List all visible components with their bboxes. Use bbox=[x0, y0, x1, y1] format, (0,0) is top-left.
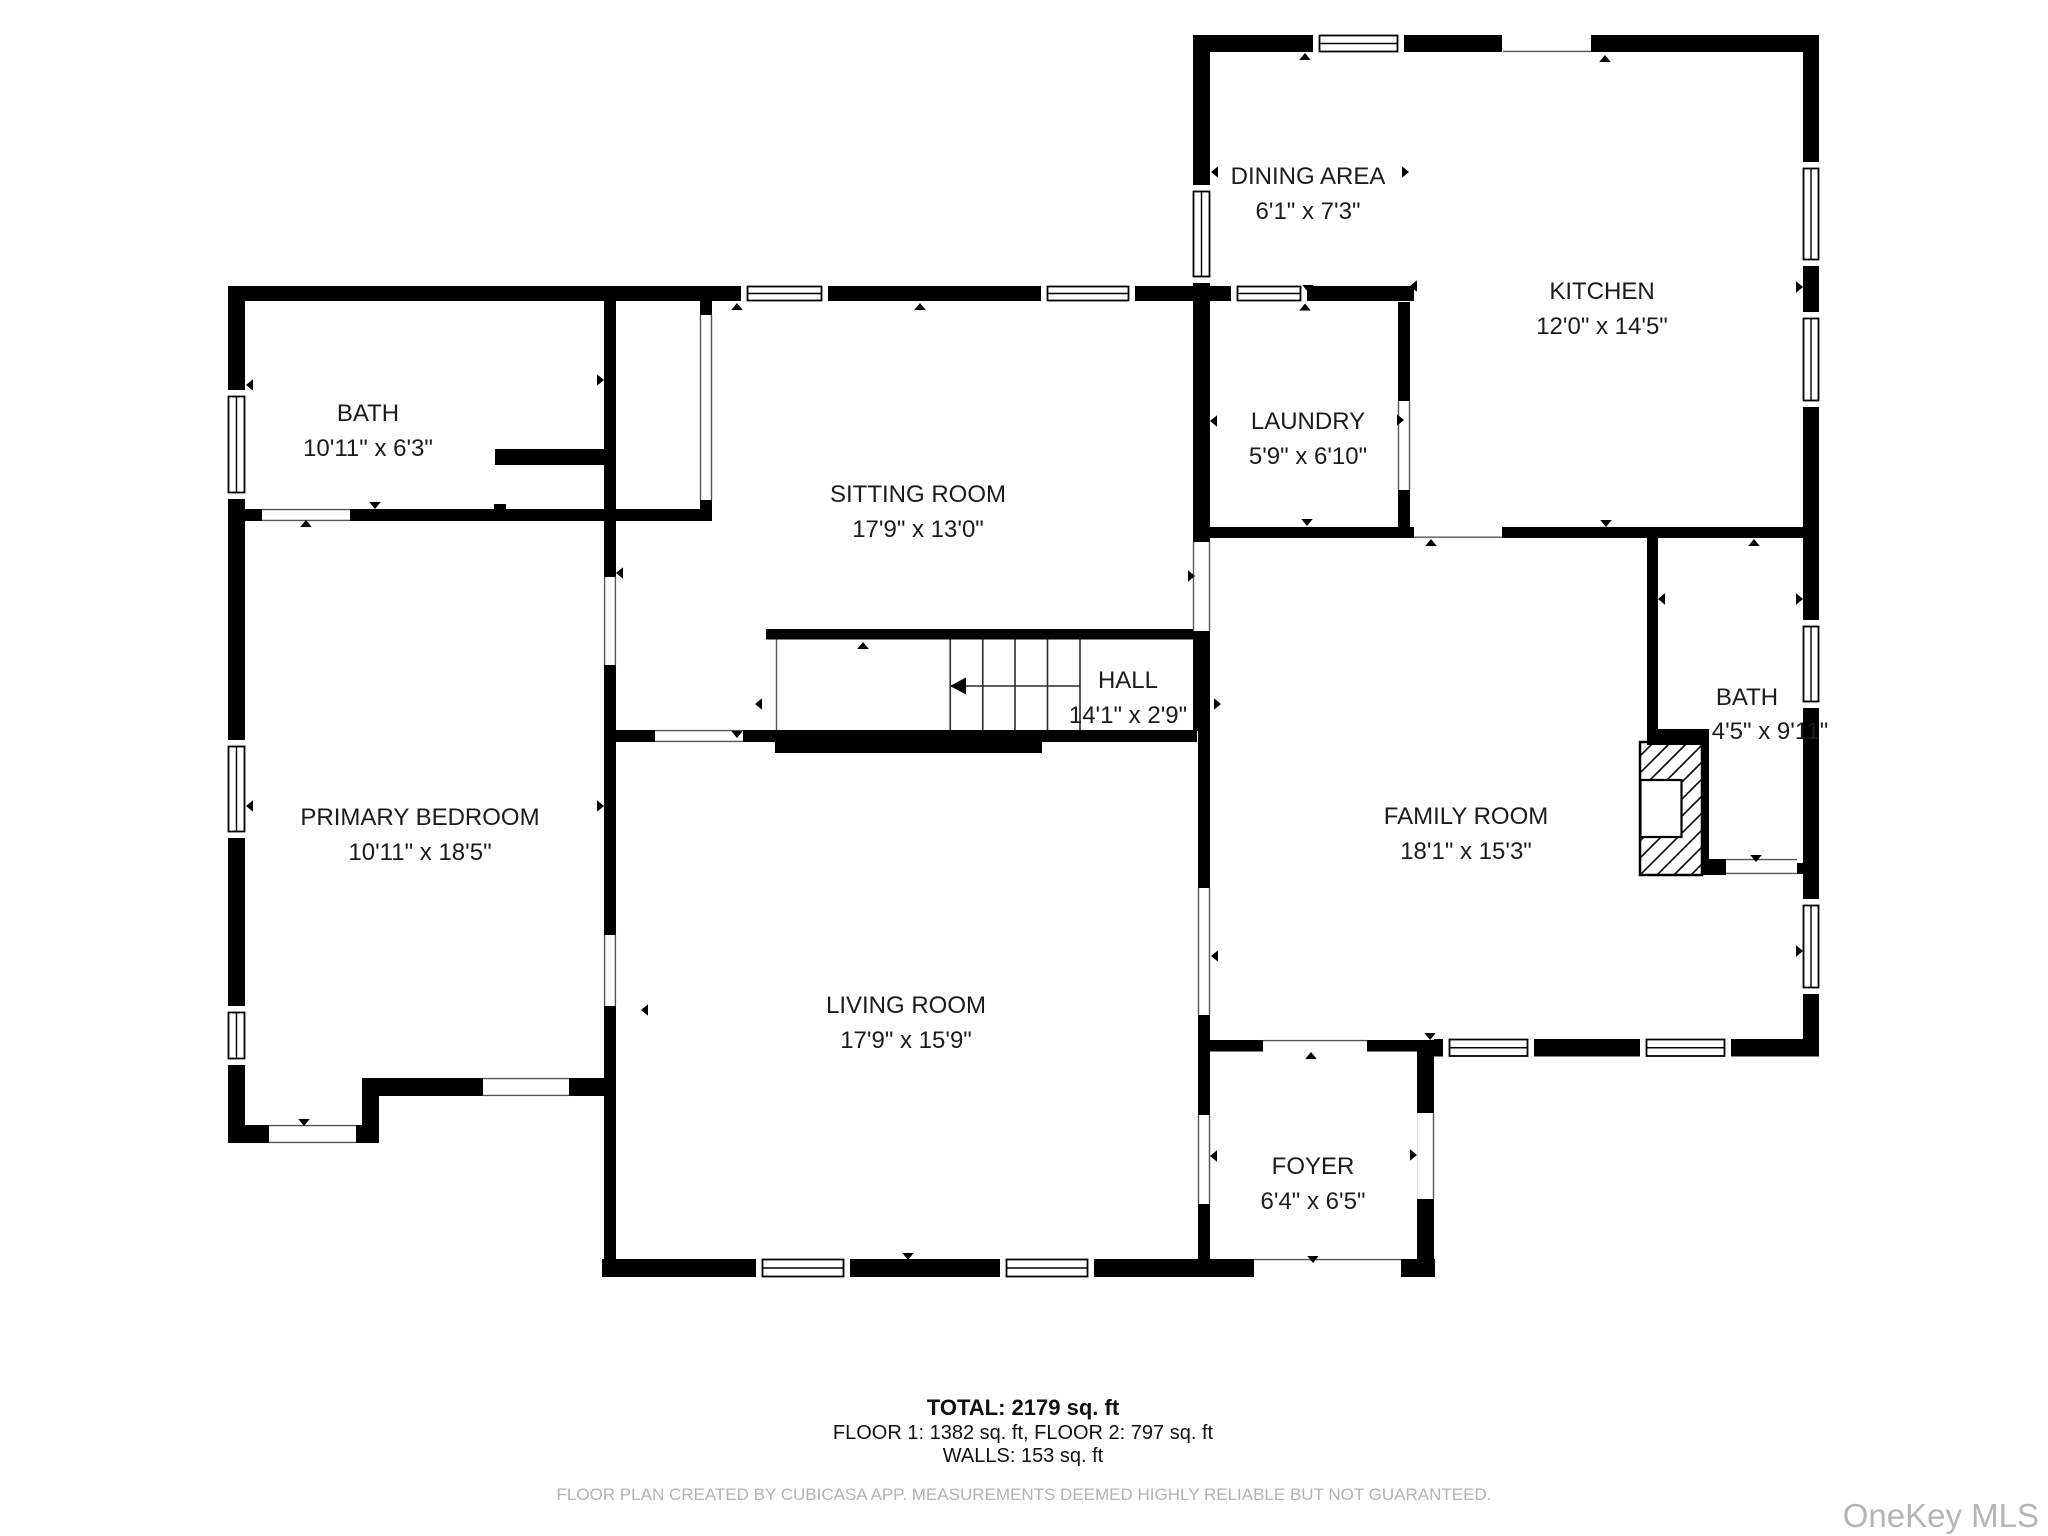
svg-text:KITCHEN: KITCHEN bbox=[1549, 278, 1654, 305]
svg-text:BATH: BATH bbox=[1716, 684, 1778, 711]
svg-text:SITTING ROOM: SITTING ROOM bbox=[830, 481, 1006, 508]
svg-text:FLOOR PLAN CREATED BY CUBICASA: FLOOR PLAN CREATED BY CUBICASA APP. MEAS… bbox=[557, 1485, 1492, 1504]
svg-text:LIVING ROOM: LIVING ROOM bbox=[826, 992, 986, 1019]
svg-text:10'11" x 18'5": 10'11" x 18'5" bbox=[348, 839, 491, 866]
svg-text:17'9" x 13'0": 17'9" x 13'0" bbox=[852, 516, 984, 543]
svg-text:FLOOR 1: 1382 sq. ft, FLOOR 2:: FLOOR 1: 1382 sq. ft, FLOOR 2: 797 sq. f… bbox=[833, 1422, 1214, 1444]
svg-text:10'11" x 6'3": 10'11" x 6'3" bbox=[303, 435, 433, 462]
svg-text:HALL: HALL bbox=[1098, 667, 1158, 694]
svg-text:14'1" x 2'9": 14'1" x 2'9" bbox=[1069, 702, 1187, 729]
svg-text:TOTAL: 2179 sq. ft: TOTAL: 2179 sq. ft bbox=[927, 1395, 1120, 1420]
svg-text:5'9" x 6'10": 5'9" x 6'10" bbox=[1249, 443, 1367, 470]
svg-text:OneKey MLS: OneKey MLS bbox=[1843, 1497, 2039, 1534]
svg-text:6'1" x 7'3": 6'1" x 7'3" bbox=[1256, 198, 1361, 225]
svg-text:WALLS: 153 sq. ft: WALLS: 153 sq. ft bbox=[943, 1445, 1104, 1467]
svg-text:4'5" x 9'11": 4'5" x 9'11" bbox=[1712, 718, 1829, 745]
svg-text:LAUNDRY: LAUNDRY bbox=[1251, 408, 1365, 435]
svg-text:12'0" x 14'5": 12'0" x 14'5" bbox=[1536, 313, 1668, 340]
svg-text:18'1" x 15'3": 18'1" x 15'3" bbox=[1400, 838, 1532, 865]
svg-text:DINING AREA: DINING AREA bbox=[1231, 163, 1386, 190]
svg-text:17'9" x 15'9": 17'9" x 15'9" bbox=[840, 1027, 972, 1054]
svg-text:FAMILY ROOM: FAMILY ROOM bbox=[1384, 803, 1548, 830]
svg-text:FOYER: FOYER bbox=[1272, 1153, 1355, 1180]
svg-text:BATH: BATH bbox=[337, 400, 399, 427]
svg-text:PRIMARY BEDROOM: PRIMARY BEDROOM bbox=[300, 804, 539, 831]
svg-text:6'4" x 6'5": 6'4" x 6'5" bbox=[1261, 1188, 1366, 1215]
